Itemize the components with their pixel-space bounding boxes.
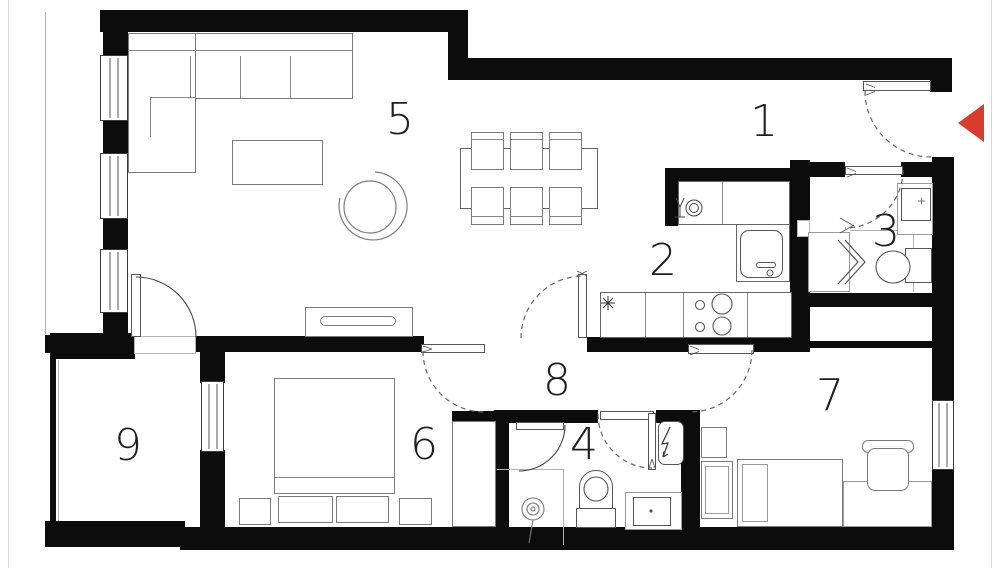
room-label-3: 3 [872,210,900,254]
pillow6-right [336,496,389,523]
sofa-div-2 [240,56,241,98]
dining-chair-2 [510,132,543,170]
balcony-door-arc [136,277,196,337]
door-entrance-leaf [863,81,931,91]
wall-bath3-bottom [806,293,932,307]
kitchen-counter-top [678,181,790,225]
wardrobe-top-bar [452,411,496,421]
dining-chair-3 [549,132,582,170]
room-label-6: 6 [410,423,438,467]
page-edge-right [991,0,992,568]
wall-top-b [448,58,952,80]
wall-kitchen-top [665,168,790,181]
wall-kitchen-bath3 [790,160,810,352]
room-label-5: 5 [386,98,414,142]
kitchen-faucet [756,262,776,268]
door-balcony-leaf [131,274,141,337]
wall-kitchen-left [665,168,678,226]
window-left-2 [100,153,128,219]
wall-mid-a [45,335,135,353]
balcony-threshold [134,336,196,354]
left-sill-line [45,12,46,334]
wall-balcony-bottom [45,521,185,547]
room6-door-arc [423,351,484,412]
shower4-line-h [497,469,563,470]
coffee-table [232,140,323,185]
kitchen-counter-bottom [600,292,792,338]
dining-chair-6 [549,187,582,225]
nightstand6-right [399,498,432,525]
cabinet7-a [701,427,727,458]
wall-hall-room7 [790,341,932,348]
chair-line-1 [472,139,503,140]
door-bath4-leaf [648,413,656,470]
chair7-seat [867,448,909,491]
window-left-1 [100,55,128,121]
window-left-3 [100,249,128,313]
floor-plan: 1 2 3 4 5 6 7 8 9 [0,0,1000,568]
door-room7-leaf [688,344,754,354]
dining-chair-4 [471,187,504,225]
room-label-9: 9 [114,424,142,468]
wall-bath3-top-b [901,162,932,177]
wall-mid-b [196,336,424,352]
kcb-div-3 [747,293,748,337]
chair-line-5 [511,216,542,217]
shower4-door-arc [519,425,565,471]
bed7-pillow [742,464,768,522]
washer4 [658,421,684,465]
sofa-chaise-line-h [150,97,195,98]
bed6-line [275,477,394,478]
room-label-2: 2 [649,239,677,283]
wall-bath3-top-a [790,162,845,177]
page-edge-left [8,0,9,568]
wardrobe6 [452,421,496,527]
wall-right-1 [932,157,954,402]
armchair [339,172,407,240]
wall-top-a [100,10,458,32]
room-label-7: 7 [816,374,844,418]
wall-bath4-left [494,410,509,550]
wall-room9-right-1 [200,352,225,383]
nightstand6-left [239,498,271,525]
cabinet7-b-inner [705,466,729,514]
tv [320,316,396,326]
wall-bottom [180,527,954,550]
room7-door-arc [690,350,752,412]
door-room6-leaf [421,344,485,353]
wall-left-2 [103,119,128,155]
kcb-div-2 [683,293,684,337]
sofa-chaise-line-v [150,97,151,137]
toilet4-tank [576,508,616,528]
sofa-chaise [128,33,196,173]
wall-room9-right-2 [200,450,225,527]
shower3-tray [808,232,850,292]
door-shower4-leaf [516,422,564,430]
sofa-div-3 [290,56,291,98]
dining-chair-5 [510,187,543,225]
wall-left-1 [103,10,128,57]
chair-line-2 [511,139,542,140]
room-label-8: 8 [543,359,571,403]
bath4-sink [633,497,671,526]
window-right [932,400,954,470]
door-bath4-head [600,411,654,420]
door-kitchen-leaf [578,274,587,338]
pillow6-left [278,496,333,523]
shower4-line-v [563,469,564,545]
wall-entrance-pier [930,58,952,92]
entrance-door-arc [865,91,931,157]
sofa-div-1 [190,56,191,98]
room-label-1: 1 [750,100,778,144]
entrance-arrow-icon [958,104,984,142]
kitchen-sink [740,230,783,278]
kitchen-counter-divider [722,182,723,224]
bath3-sink [901,188,931,221]
window-balcony [201,381,224,452]
wall-left-3 [103,217,128,251]
chair-line-3 [550,139,581,140]
sofa-back-line [129,50,352,51]
chair-line-4 [472,216,503,217]
balcony-inner-line [58,360,59,521]
room-label-4: 4 [570,423,598,467]
door-bath3-leaf [845,166,903,175]
bath4-door-arc [598,414,652,468]
kitchen-door-arc [521,276,583,338]
kcb-div-1 [645,293,646,337]
bath3-toilet-tank [905,248,932,283]
chair-line-6 [550,216,581,217]
wall-balcony-left [50,333,56,545]
toilet4-bowl [579,470,613,512]
dining-chair-1 [471,132,504,170]
